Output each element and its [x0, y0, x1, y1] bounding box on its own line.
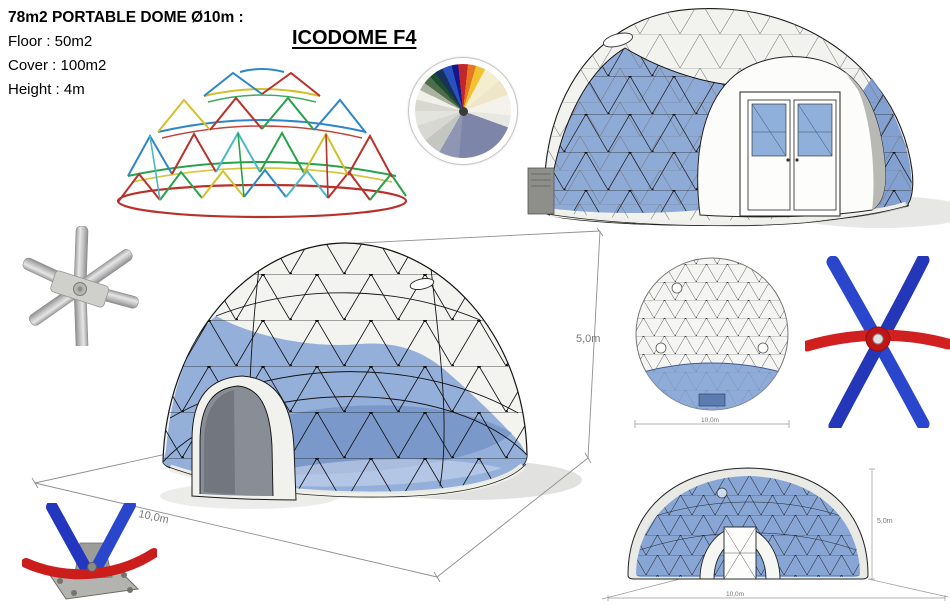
- page-title: ICODOME F4: [292, 27, 416, 50]
- hub-bolt: [873, 334, 883, 344]
- vent-icon: [758, 343, 768, 353]
- front-height-label: 5,0m: [877, 518, 893, 525]
- colored-hub-figure: [805, 256, 950, 428]
- cover-color-wheel: [408, 57, 518, 165]
- color-wheel-hub: [459, 107, 468, 116]
- base-plate-figure: [22, 503, 157, 605]
- base-plate-drawing: [22, 503, 157, 605]
- vent-icon: [672, 283, 682, 293]
- top-view-figure: 10,0m: [633, 246, 793, 436]
- colored-frame-dome-drawing: [112, 56, 412, 222]
- top-view-width-label: 10,0m: [701, 417, 719, 424]
- product-sheet-page: 78m2 PORTABLE DOME Ø10m : Floor : 50m2 C…: [0, 0, 950, 608]
- steel-hub-drawing: [10, 226, 150, 346]
- heater-unit: [528, 168, 554, 214]
- main-height-label: 5,0m: [576, 333, 600, 345]
- hub-bolt: [88, 563, 97, 572]
- vent-icon: [656, 343, 666, 353]
- front-view-drawing: 5,0m 10,0m: [600, 455, 950, 605]
- steel-hub-figure: [10, 226, 150, 346]
- front-width-label: 10,0m: [726, 591, 744, 598]
- dome-render-figure: [520, 0, 950, 240]
- spec-title: 78m2 PORTABLE DOME Ø10m :: [8, 6, 288, 30]
- colored-hub-drawing: [805, 256, 950, 428]
- spec-floor: Floor : 50m2: [8, 30, 288, 54]
- ground-lines: [602, 579, 948, 599]
- vent-icon: [717, 488, 727, 498]
- colored-frame-dome-figure: [112, 56, 412, 222]
- dome-render-drawing: [520, 0, 950, 240]
- top-view-drawing: 10,0m: [633, 246, 793, 436]
- front-view-figure: 5,0m 10,0m: [600, 455, 950, 605]
